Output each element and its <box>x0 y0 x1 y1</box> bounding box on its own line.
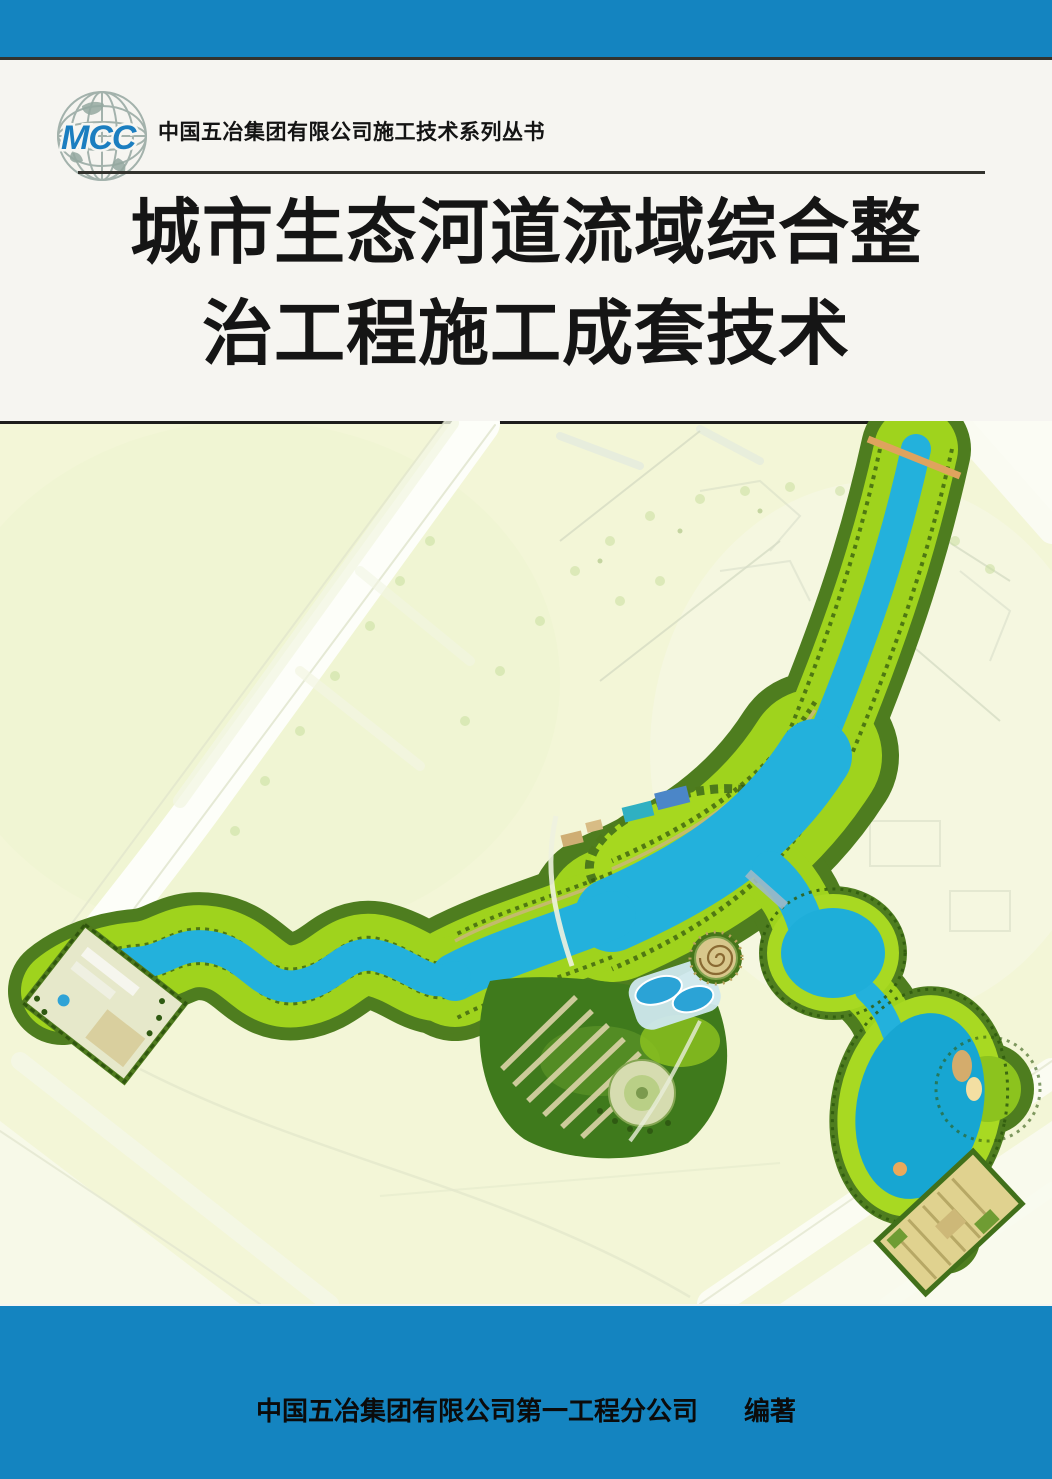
footer-publisher: 中国五冶集团有限公司第一工程分公司 <box>256 1396 698 1426</box>
book-title-line2: 治工程施工成套技术 <box>0 284 1052 385</box>
spiral-mound <box>690 932 742 984</box>
book-cover: MCC 中国五冶集团有限公司施工技术系列丛书 城市生态河道流域综合整 治工程施工… <box>0 0 1052 1479</box>
top-band-rule <box>0 57 1052 60</box>
footer-role: 编著 <box>744 1396 796 1426</box>
book-title-line1: 城市生态河道流域综合整 <box>0 183 1052 284</box>
book-title: 城市生态河道流域综合整 治工程施工成套技术 <box>0 183 1052 385</box>
lake-upper <box>781 908 885 998</box>
footer-credit: 中国五冶集团有限公司第一工程分公司编著 <box>0 1391 1052 1428</box>
series-title: 中国五冶集团有限公司施工技术系列丛书 <box>158 116 545 146</box>
top-band <box>0 0 1052 57</box>
fan-plaza <box>609 1060 675 1126</box>
masterplan-map-image <box>0 421 1052 1304</box>
mcc-logo-icon: MCC <box>52 88 162 184</box>
mcc-logo-text: MCC <box>61 119 137 157</box>
masterplan-map-svg <box>0 421 1052 1304</box>
header-divider <box>78 171 985 174</box>
